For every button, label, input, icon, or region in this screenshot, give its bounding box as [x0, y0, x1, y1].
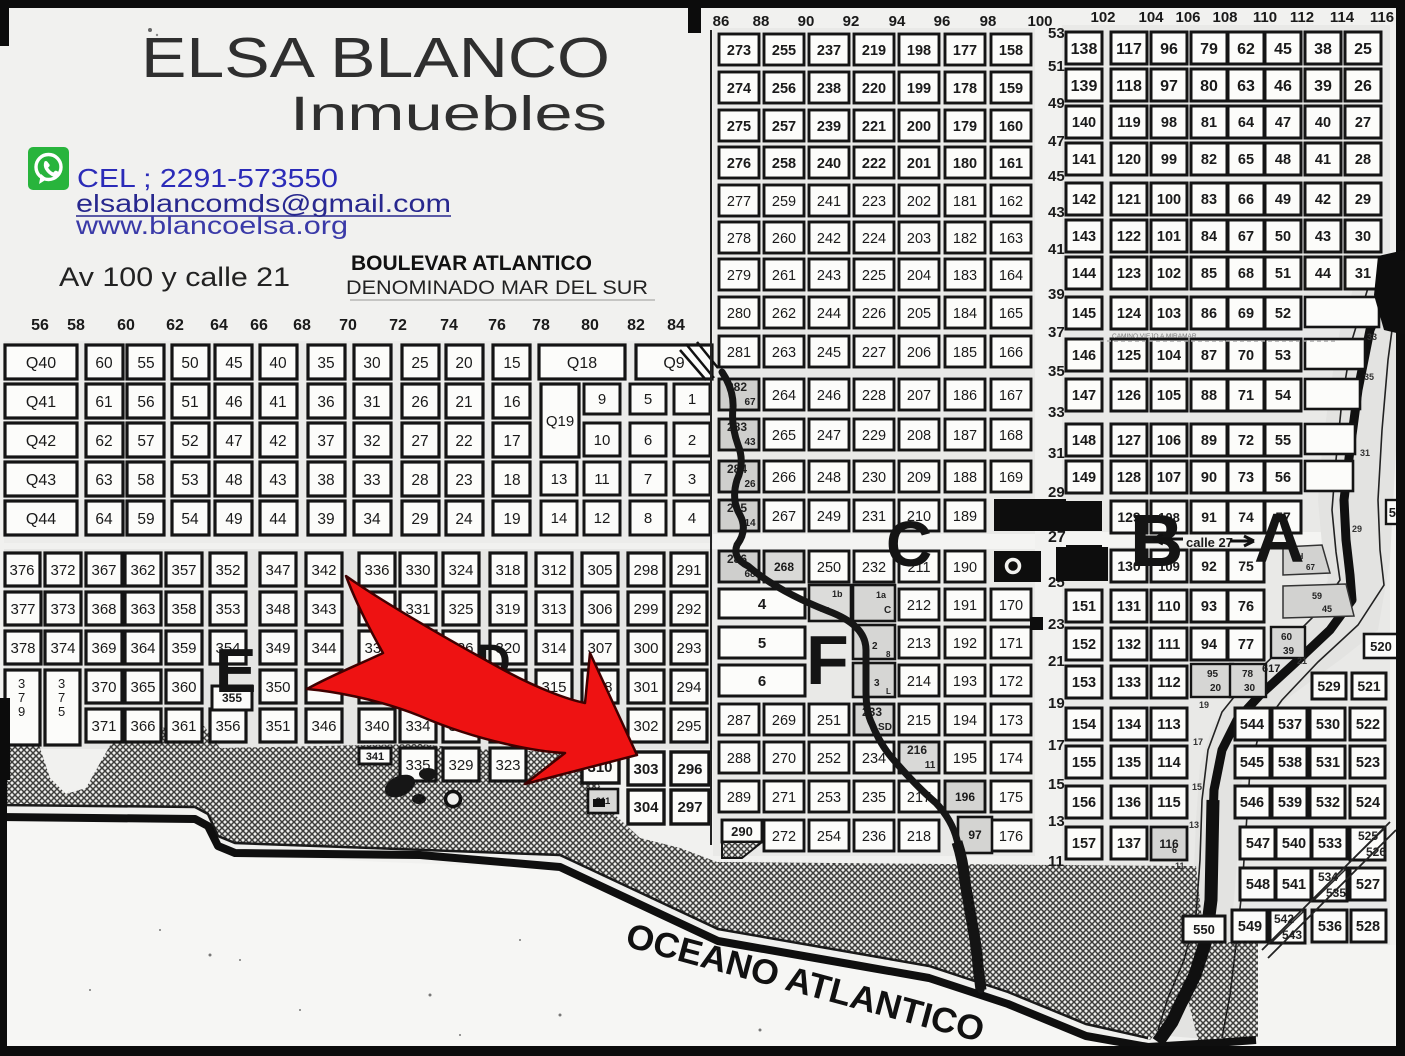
svg-text:547: 547 [1246, 836, 1270, 852]
svg-text:244: 244 [817, 306, 841, 322]
svg-text:116: 116 [1370, 9, 1394, 26]
svg-text:29: 29 [411, 511, 428, 528]
svg-text:64: 64 [210, 317, 228, 334]
svg-text:28: 28 [1355, 152, 1371, 168]
svg-text:43: 43 [1315, 229, 1331, 245]
svg-text:541: 541 [1282, 877, 1306, 893]
svg-text:536: 536 [1318, 919, 1342, 935]
svg-text:84: 84 [667, 317, 685, 334]
svg-text:204: 204 [907, 268, 931, 284]
svg-text:21: 21 [1048, 653, 1065, 670]
svg-text:250: 250 [817, 560, 841, 576]
svg-text:314: 314 [541, 640, 566, 657]
svg-text:365: 365 [130, 679, 155, 696]
svg-text:50: 50 [181, 355, 199, 372]
svg-text:27: 27 [1048, 529, 1066, 546]
svg-text:70: 70 [1238, 348, 1254, 364]
svg-text:281: 281 [727, 345, 751, 361]
svg-text:276: 276 [727, 156, 751, 172]
svg-text:7: 7 [644, 471, 652, 488]
svg-text:527: 527 [1356, 877, 1380, 893]
svg-text:323: 323 [495, 757, 520, 774]
svg-text:6: 6 [758, 673, 766, 690]
svg-text:104: 104 [1157, 348, 1181, 364]
svg-text:184: 184 [953, 306, 977, 322]
svg-text:132: 132 [1117, 637, 1141, 653]
svg-text:Q9: Q9 [663, 355, 684, 372]
svg-text:205: 205 [907, 306, 931, 322]
svg-text:343: 343 [311, 601, 336, 618]
svg-text:178: 178 [953, 81, 977, 97]
svg-text:318: 318 [495, 562, 520, 579]
svg-text:52: 52 [1275, 306, 1291, 322]
svg-text:34: 34 [363, 511, 381, 528]
svg-text:33: 33 [1048, 404, 1065, 421]
svg-text:290: 290 [731, 824, 753, 839]
svg-text:60: 60 [95, 355, 113, 372]
svg-text:234: 234 [862, 751, 886, 767]
svg-text:3: 3 [18, 676, 25, 691]
svg-text:27: 27 [1355, 115, 1371, 131]
svg-text:1b: 1b [832, 589, 843, 599]
svg-text:549: 549 [1238, 919, 1262, 935]
svg-text:30: 30 [363, 355, 381, 372]
svg-text:236: 236 [862, 829, 886, 845]
svg-text:533: 533 [1318, 836, 1342, 852]
svg-text:239: 239 [817, 119, 841, 135]
svg-text:200: 200 [907, 119, 931, 135]
svg-text:90: 90 [1201, 470, 1217, 486]
svg-text:272: 272 [772, 829, 796, 845]
svg-text:221: 221 [862, 119, 886, 135]
svg-text:334: 334 [405, 718, 430, 735]
svg-text:20: 20 [455, 355, 473, 372]
svg-text:350: 350 [265, 679, 290, 696]
svg-text:46: 46 [225, 394, 242, 411]
svg-text:325: 325 [448, 601, 473, 618]
svg-text:238: 238 [817, 81, 841, 97]
svg-text:297: 297 [677, 799, 702, 816]
svg-text:161: 161 [999, 156, 1023, 172]
svg-text:218: 218 [907, 829, 931, 845]
svg-text:176: 176 [999, 829, 1023, 845]
svg-text:45: 45 [1048, 168, 1065, 185]
svg-text:56: 56 [1275, 470, 1291, 486]
svg-text:358: 358 [171, 601, 196, 618]
svg-text:62: 62 [95, 433, 112, 450]
svg-text:172: 172 [999, 674, 1023, 690]
svg-text:295: 295 [676, 718, 701, 735]
svg-text:67: 67 [1238, 229, 1254, 245]
svg-text:372: 372 [50, 562, 75, 579]
svg-text:51: 51 [1275, 266, 1291, 282]
svg-text:17: 17 [1048, 737, 1065, 754]
svg-text:289: 289 [727, 790, 751, 806]
svg-text:144: 144 [1072, 266, 1096, 282]
svg-text:371: 371 [91, 718, 116, 735]
svg-text:117: 117 [1116, 41, 1142, 58]
svg-text:330: 330 [405, 562, 430, 579]
svg-text:39: 39 [1048, 286, 1065, 303]
svg-text:F: F [806, 621, 849, 699]
svg-text:1: 1 [688, 391, 696, 408]
svg-text:114: 114 [1157, 755, 1180, 771]
svg-text:63: 63 [1237, 78, 1255, 95]
svg-text:124: 124 [1117, 306, 1141, 322]
svg-text:55: 55 [1275, 433, 1291, 449]
svg-text:115: 115 [1157, 795, 1180, 811]
svg-text:107: 107 [1157, 470, 1181, 486]
svg-text:106: 106 [1175, 9, 1200, 26]
svg-text:82: 82 [1201, 152, 1217, 168]
svg-text:213: 213 [907, 636, 931, 652]
svg-text:114: 114 [1330, 9, 1355, 26]
svg-text:81: 81 [1201, 115, 1217, 131]
svg-text:344: 344 [311, 640, 336, 657]
svg-text:216: 216 [907, 743, 927, 757]
svg-text:258: 258 [772, 156, 796, 172]
svg-text:45: 45 [225, 355, 242, 372]
svg-text:329: 329 [448, 757, 473, 774]
svg-text:215: 215 [907, 713, 931, 729]
svg-text:102: 102 [1157, 266, 1181, 282]
svg-text:59: 59 [137, 511, 154, 528]
svg-text:82: 82 [627, 317, 645, 334]
svg-text:29: 29 [1355, 192, 1371, 208]
svg-text:303: 303 [633, 761, 658, 778]
svg-text:257: 257 [772, 119, 796, 135]
svg-text:Q40: Q40 [26, 355, 56, 372]
svg-text:49: 49 [1048, 95, 1065, 112]
svg-text:40: 40 [269, 355, 287, 372]
svg-text:68: 68 [1238, 266, 1254, 282]
svg-text:151: 151 [1072, 599, 1096, 615]
svg-text:193: 193 [953, 674, 977, 690]
svg-text:95: 95 [1207, 669, 1219, 680]
svg-text:99: 99 [1161, 152, 1177, 168]
svg-text:A: A [1254, 499, 1305, 577]
svg-text:180: 180 [953, 156, 977, 172]
svg-text:528: 528 [1356, 919, 1380, 935]
svg-text:537: 537 [1278, 717, 1302, 733]
svg-text:214: 214 [907, 674, 931, 690]
svg-text:9: 9 [18, 704, 25, 719]
svg-text:44: 44 [1315, 266, 1331, 282]
svg-text:225: 225 [862, 268, 886, 284]
svg-text:35: 35 [1364, 372, 1374, 382]
svg-text:366: 366 [130, 718, 155, 735]
svg-text:88: 88 [1201, 388, 1217, 404]
svg-text:356: 356 [215, 718, 240, 735]
svg-text:186: 186 [953, 388, 977, 404]
svg-text:149: 149 [1072, 470, 1096, 486]
svg-text:39: 39 [1283, 646, 1295, 657]
svg-text:336: 336 [364, 562, 389, 579]
svg-text:254: 254 [817, 829, 841, 845]
svg-text:72: 72 [389, 317, 407, 334]
svg-text:138: 138 [1071, 41, 1098, 58]
svg-text:524: 524 [1356, 795, 1380, 811]
svg-text:169: 169 [999, 470, 1023, 486]
svg-text:25: 25 [411, 355, 428, 372]
svg-text:38: 38 [1314, 41, 1332, 58]
svg-text:377: 377 [10, 601, 35, 618]
svg-text:378: 378 [10, 640, 35, 657]
svg-text:58: 58 [137, 472, 154, 489]
svg-text:123: 123 [1117, 266, 1141, 282]
svg-text:54: 54 [1275, 388, 1291, 404]
svg-text:264: 264 [772, 388, 796, 404]
svg-text:340: 340 [364, 718, 389, 735]
svg-text:86: 86 [713, 13, 730, 30]
svg-text:L: L [886, 687, 891, 696]
svg-text:299: 299 [633, 601, 658, 618]
svg-text:DENOMINADO MAR DEL SUR: DENOMINADO MAR DEL SUR [346, 278, 648, 299]
svg-text:41: 41 [1315, 152, 1331, 168]
svg-text:47: 47 [1275, 115, 1291, 131]
svg-text:271: 271 [772, 790, 796, 806]
svg-text:76: 76 [1238, 599, 1254, 615]
svg-text:67: 67 [1306, 563, 1315, 572]
svg-text:348: 348 [265, 601, 290, 618]
svg-text:6: 6 [1172, 845, 1177, 855]
svg-text:262: 262 [772, 306, 796, 322]
svg-text:91: 91 [1201, 509, 1217, 525]
svg-text:229: 229 [862, 428, 886, 444]
svg-text:35: 35 [1048, 363, 1065, 380]
svg-text:181: 181 [953, 194, 977, 210]
svg-text:363: 363 [130, 601, 155, 618]
svg-text:228: 228 [862, 388, 886, 404]
svg-text:192: 192 [953, 636, 977, 652]
svg-text:26: 26 [411, 394, 428, 411]
svg-text:11: 11 [594, 471, 610, 488]
svg-text:102: 102 [1090, 9, 1115, 26]
svg-text:58: 58 [67, 317, 85, 334]
svg-text:237: 237 [817, 43, 841, 59]
svg-text:146: 146 [1072, 348, 1096, 364]
svg-text:136: 136 [1117, 795, 1141, 811]
svg-text:194: 194 [953, 713, 977, 729]
svg-text:28: 28 [411, 472, 428, 489]
svg-text:26: 26 [1354, 78, 1372, 95]
svg-text:97: 97 [1160, 78, 1178, 95]
svg-text:245: 245 [817, 345, 841, 361]
svg-text:162: 162 [999, 194, 1023, 210]
svg-text:43: 43 [744, 437, 756, 448]
svg-text:31: 31 [1048, 445, 1065, 462]
svg-text:370: 370 [91, 679, 116, 696]
svg-text:Q42: Q42 [26, 433, 56, 450]
svg-text:294: 294 [676, 679, 701, 696]
svg-text:125: 125 [1117, 348, 1141, 364]
svg-text:92: 92 [1201, 558, 1217, 574]
svg-text:270: 270 [772, 751, 796, 767]
svg-text:105: 105 [1157, 388, 1181, 404]
svg-text:249: 249 [817, 509, 841, 525]
svg-text:17: 17 [503, 433, 520, 450]
svg-text:19: 19 [1048, 695, 1065, 712]
svg-text:89: 89 [1201, 433, 1217, 449]
svg-text:277: 277 [727, 194, 751, 210]
svg-text:312: 312 [541, 562, 566, 579]
svg-text:265: 265 [772, 428, 796, 444]
svg-text:15: 15 [1048, 776, 1065, 793]
svg-text:226: 226 [862, 306, 886, 322]
svg-text:302: 302 [633, 718, 658, 735]
svg-text:101: 101 [1157, 229, 1181, 245]
svg-text:19: 19 [1199, 700, 1209, 710]
svg-text:79: 79 [1200, 41, 1218, 58]
svg-text:523: 523 [1356, 755, 1380, 771]
svg-text:139: 139 [1071, 78, 1098, 95]
svg-text:15: 15 [1192, 782, 1202, 792]
svg-text:80: 80 [1200, 78, 1218, 95]
svg-text:521: 521 [1357, 678, 1381, 694]
svg-text:353: 353 [215, 601, 240, 618]
svg-text:E: E [215, 637, 256, 706]
svg-text:33: 33 [363, 472, 380, 489]
svg-text:Q18: Q18 [567, 355, 597, 372]
svg-text:33: 33 [1367, 332, 1377, 342]
svg-text:279: 279 [727, 268, 751, 284]
svg-text:76: 76 [488, 317, 506, 334]
svg-text:2: 2 [872, 641, 878, 652]
svg-text:251: 251 [817, 713, 841, 729]
svg-text:156: 156 [1072, 795, 1096, 811]
svg-text:9: 9 [598, 391, 606, 408]
svg-text:120: 120 [1117, 152, 1141, 168]
svg-text:48: 48 [225, 472, 242, 489]
svg-text:274: 274 [727, 81, 751, 97]
svg-text:141: 141 [1072, 152, 1096, 168]
svg-text:22: 22 [455, 433, 472, 450]
svg-text:13: 13 [1189, 820, 1199, 830]
svg-text:3: 3 [874, 678, 880, 689]
svg-text:118: 118 [1116, 78, 1142, 95]
svg-text:369: 369 [91, 640, 116, 657]
svg-text:70: 70 [339, 317, 357, 334]
svg-text:189: 189 [953, 509, 977, 525]
svg-text:3: 3 [688, 471, 696, 488]
svg-text:248: 248 [817, 470, 841, 486]
svg-text:42: 42 [269, 433, 286, 450]
svg-text:351: 351 [265, 718, 290, 735]
svg-text:11: 11 [1048, 853, 1064, 870]
svg-text:171: 171 [999, 636, 1023, 652]
svg-text:94: 94 [1201, 637, 1217, 653]
svg-text:273: 273 [727, 43, 751, 59]
svg-text:538: 538 [1278, 755, 1302, 771]
svg-text:280: 280 [727, 306, 751, 322]
svg-text:50: 50 [1275, 229, 1291, 245]
svg-text:5: 5 [758, 635, 766, 652]
svg-text:Inmuebles: Inmuebles [290, 88, 607, 141]
svg-text:29: 29 [1352, 524, 1362, 534]
svg-text:157: 157 [1072, 836, 1096, 852]
svg-text:165: 165 [999, 306, 1023, 322]
svg-text:104: 104 [1138, 9, 1164, 26]
svg-text:231: 231 [862, 509, 886, 525]
svg-text:10: 10 [594, 432, 611, 449]
svg-text:247: 247 [817, 428, 841, 444]
svg-text:60: 60 [1281, 632, 1293, 643]
svg-text:266: 266 [772, 470, 796, 486]
svg-text:196: 196 [955, 790, 975, 804]
svg-text:Q44: Q44 [26, 511, 56, 528]
svg-text:544: 544 [1240, 717, 1264, 733]
svg-text:36: 36 [317, 394, 334, 411]
svg-text:12: 12 [594, 510, 611, 527]
svg-text:7: 7 [58, 690, 65, 705]
svg-text:256: 256 [772, 81, 796, 97]
svg-text:84: 84 [1201, 229, 1217, 245]
svg-text:96: 96 [934, 13, 951, 30]
svg-text:188: 188 [953, 470, 977, 486]
svg-text:41: 41 [269, 394, 286, 411]
svg-text:222: 222 [862, 156, 886, 172]
svg-text:539: 539 [1278, 795, 1302, 811]
svg-text:357: 357 [171, 562, 196, 579]
svg-text:275: 275 [727, 119, 751, 135]
svg-text:8: 8 [644, 510, 652, 527]
svg-text:6: 6 [644, 432, 652, 449]
svg-text:364: 364 [130, 640, 155, 657]
svg-text:62: 62 [1237, 41, 1255, 58]
svg-text:532: 532 [1316, 795, 1340, 811]
svg-text:31: 31 [363, 394, 380, 411]
svg-text:86: 86 [1201, 306, 1217, 322]
svg-text:134: 134 [1117, 717, 1141, 733]
svg-text:3: 3 [58, 676, 65, 691]
svg-text:203: 203 [907, 231, 931, 247]
svg-text:96: 96 [1160, 41, 1178, 58]
svg-text:35: 35 [317, 355, 334, 372]
svg-text:126: 126 [1117, 388, 1141, 404]
svg-text:140: 140 [1072, 115, 1096, 131]
svg-text:92: 92 [843, 13, 860, 30]
svg-text:166: 166 [999, 345, 1023, 361]
svg-text:25: 25 [1354, 41, 1372, 58]
svg-text:38: 38 [317, 472, 334, 489]
svg-text:367: 367 [91, 562, 116, 579]
svg-text:253: 253 [817, 790, 841, 806]
svg-text:78: 78 [1242, 669, 1254, 680]
svg-text:548: 548 [1246, 877, 1270, 893]
svg-text:1a: 1a [876, 590, 887, 600]
svg-text:13: 13 [1048, 813, 1065, 830]
svg-text:51: 51 [181, 394, 198, 411]
svg-text:152: 152 [1072, 637, 1096, 653]
svg-text:376: 376 [9, 562, 34, 579]
svg-text:Q41: Q41 [26, 394, 56, 411]
svg-text:219: 219 [862, 43, 886, 59]
svg-text:100: 100 [1157, 192, 1181, 208]
svg-text:54: 54 [181, 511, 199, 528]
svg-text:26: 26 [744, 479, 756, 490]
svg-text:66: 66 [250, 317, 268, 334]
svg-text:163: 163 [999, 231, 1023, 247]
svg-text:296: 296 [677, 761, 702, 778]
svg-text:72: 72 [1238, 433, 1254, 449]
svg-text:21: 21 [455, 394, 472, 411]
svg-text:60: 60 [117, 317, 135, 334]
svg-text:306: 306 [587, 601, 612, 618]
svg-text:64: 64 [95, 511, 113, 528]
svg-text:182: 182 [953, 231, 977, 247]
svg-text:546: 546 [1240, 795, 1264, 811]
svg-text:195: 195 [953, 751, 977, 767]
